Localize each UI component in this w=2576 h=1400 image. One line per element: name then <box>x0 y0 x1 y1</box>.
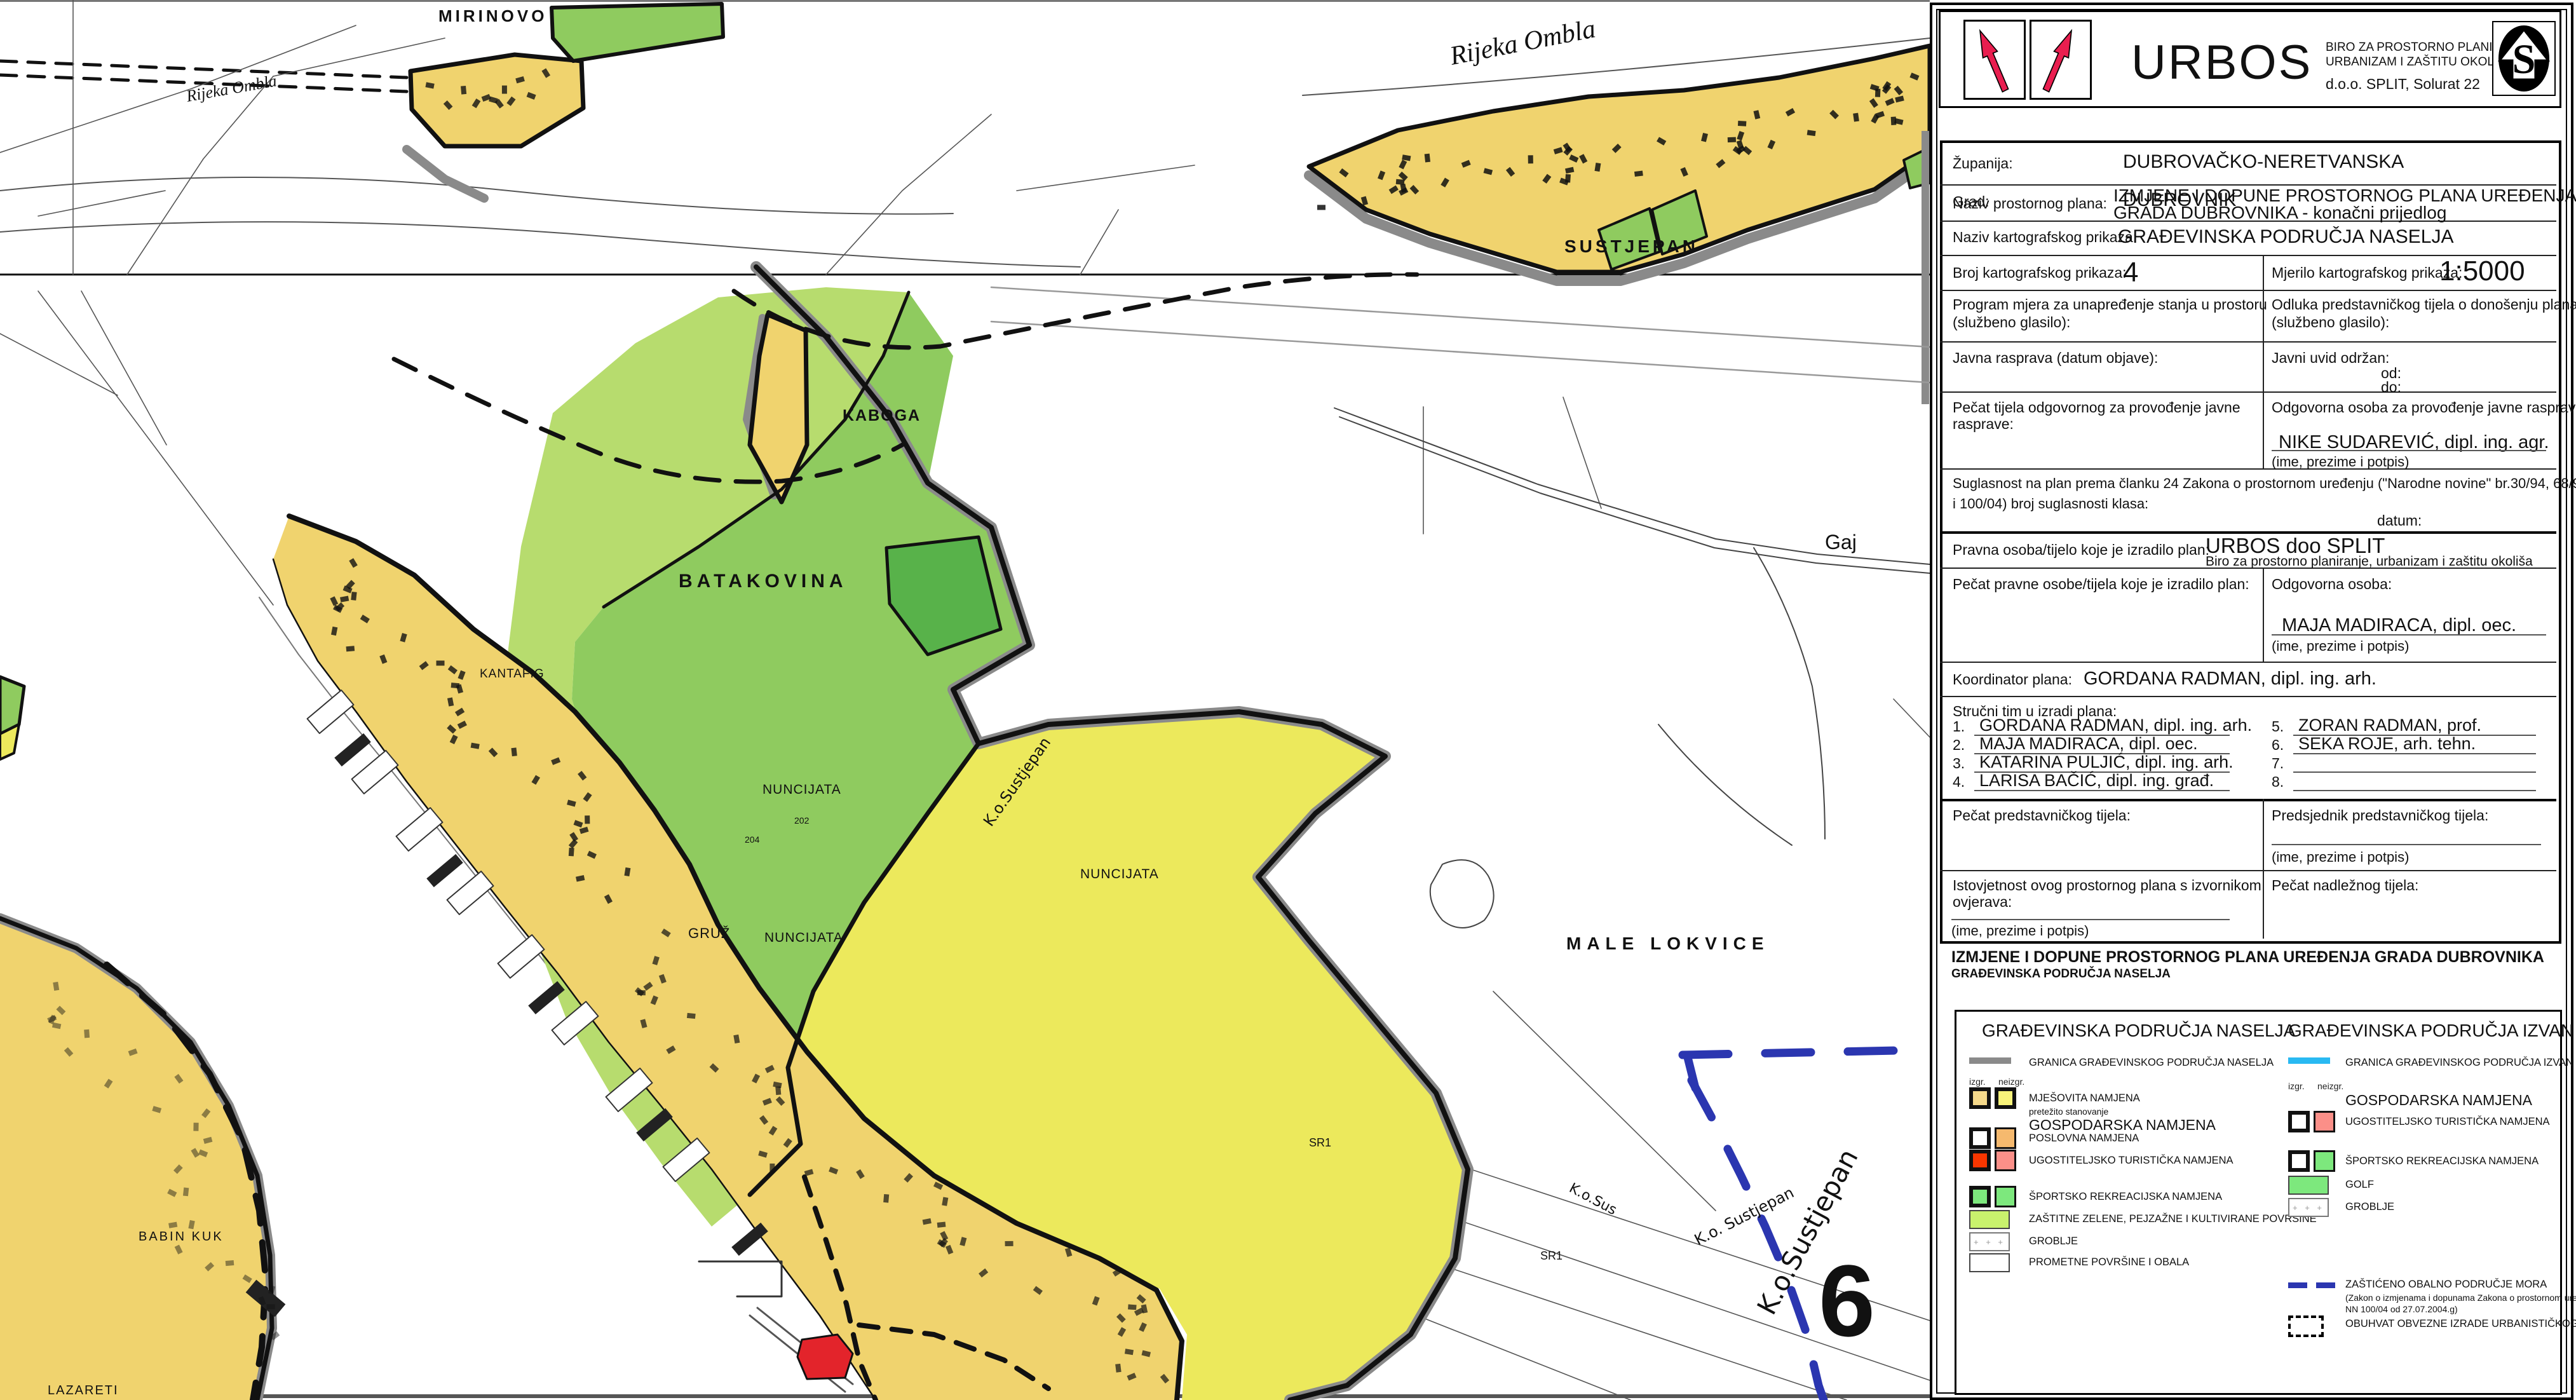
legend-neizgr-label: neizgr. <box>1998 1077 2024 1087</box>
pravna-value-2: Biro za prostorno planiranje, urbanizam … <box>2206 554 2533 569</box>
odluka-label-1: Odluka predstavničkog tijela o donošenju… <box>2272 296 2576 313</box>
legend-swatch-izgradeno <box>2288 1150 2310 1172</box>
map-label: NUNCIJATA <box>764 930 843 945</box>
team-member-name: MAJA MADIRACA, dipl. oec. <box>1979 734 2198 754</box>
legend-izgr-label: izgr. <box>2288 1081 2305 1091</box>
title-block-panel: URBOS BIRO ZA PROSTORNO PLANIRANJE, URBA… <box>1930 3 2573 1400</box>
istovjetnost-label-1: Istovjetnost ovog prostornog plana s izv… <box>1953 877 2261 894</box>
map-label: BATAKOVINA <box>679 571 848 592</box>
map-label: BABIN KUK <box>139 1230 224 1244</box>
legend-item-label: ZAŠTIĆENO OBALNO PODRUČJE MORA <box>2345 1279 2547 1291</box>
broj-prikaza-value: 4 <box>2123 257 2138 289</box>
team-member-number: 6. <box>2272 737 2284 754</box>
map-label: SR1 <box>1540 1249 1563 1262</box>
legend-swatch-izgradeno <box>1969 1087 1991 1109</box>
map-label: 202 <box>794 815 810 826</box>
pecat-pravne-label: Pečat pravne osobe/tijela koje je izradi… <box>1953 576 2249 593</box>
team-member-name: SEKA ROJE, arh. tehn. <box>2298 734 2476 754</box>
legend-swatch <box>1969 1210 2010 1229</box>
legend-swatch-neizgradeno <box>2314 1150 2335 1172</box>
map-label: KABOGA <box>843 407 921 425</box>
legend-swatch-zop-dash <box>2316 1282 2335 1288</box>
team-member-number: 4. <box>1953 773 1965 791</box>
legend-item-sublabel: pretežito stanovanje <box>2029 1106 2108 1117</box>
map-label: Gaj <box>1825 531 1857 554</box>
datum-label: datum: <box>2377 512 2422 529</box>
legend-swatch-izgradeno <box>1969 1186 1991 1207</box>
legend-swatch-neizgradeno <box>1995 1087 2016 1109</box>
legend-swatch-izgradeno <box>2288 1111 2310 1132</box>
do-label: do: <box>2381 379 2401 396</box>
split-s-logo: S <box>2492 21 2556 99</box>
map-frame-top <box>0 0 1930 2</box>
svg-text:S: S <box>2512 36 2536 83</box>
mjerilo-value: 1:5000 <box>2439 255 2525 287</box>
legend-item-label: PROMETNE POVRŠINE I OBALA <box>2029 1256 2189 1268</box>
pecat-tijela-label-2: rasprave: <box>1953 416 2014 433</box>
legend-item-label: UGOSTITELJSKO TURISTIČKA NAMJENA <box>2345 1116 2550 1128</box>
pecat-tijela-label-1: Pečat tijela odgovornog za provođenje ja… <box>1953 399 2240 416</box>
zupanija-label: Županija: <box>1953 155 2013 172</box>
map-label: KANTAFIG <box>480 667 545 681</box>
map-label: MALE LOKVICE <box>1566 934 1770 953</box>
legend-item-label: ŠPORTSKO REKREACIJSKA NAMJENA <box>2029 1191 2222 1203</box>
logo-arrow-left-box <box>1963 20 2026 100</box>
legend-item-label: GRANICA GRAĐEVINSKOG PODRUČJA IZVAN NASE… <box>2345 1057 2576 1069</box>
plan-subtitle-2: GRAĐEVINSKA PODRUČJA NASELJA <box>1951 967 2171 981</box>
legend-swatch-groblje: + + + <box>1969 1232 2010 1251</box>
ime-potpis-note-2: (ime, prezime i potpis) <box>2272 638 2409 655</box>
plan-sheet: MIRINOVORijeka OmblaRijeka OmblaSUSTJEPA… <box>0 0 2576 1400</box>
team-member-number: 8. <box>2272 773 2284 791</box>
map-label: GRUŽ <box>688 925 730 941</box>
company-name: URBOS <box>2131 35 2312 90</box>
pecat-predstavnickog-label: Pečat predstavničkog tijela: <box>1953 807 2131 824</box>
legend-item-label: POSLOVNA NAMJENA <box>2029 1132 2139 1145</box>
legend-right-title: GRAĐEVINSKA PODRUČJA IZVAN NASELJA <box>2288 1021 2576 1041</box>
map-label: NUNCIJATA <box>1080 867 1159 881</box>
legend-item-label: ZAŠTITNE ZELENE, PEJZAŽNE I KULTIVIRANE … <box>2029 1213 2317 1225</box>
legend-item-label: MJEŠOVITA NAMJENA <box>2029 1092 2140 1104</box>
legend-section-heading: GOSPODARSKA NAMJENA <box>2029 1117 2216 1134</box>
legend-swatch <box>1969 1253 2010 1272</box>
ime-potpis-note-3: (ime, prezime i potpis) <box>2272 849 2409 866</box>
naziv-plana-line2: GRADA DUBROVNIKA - konačni prijedlog <box>2113 203 2446 223</box>
legend-left-title: GRAĐEVINSKA PODRUČJA NASELJA <box>1982 1021 2295 1041</box>
legend-swatch-groblje: + + + <box>2288 1198 2329 1217</box>
legend-item-label: GOLF <box>2345 1179 2374 1191</box>
naziv-plana-label: Naziv prostornog plana: <box>1953 195 2107 212</box>
istovjetnost-label-2: ovjerava: <box>1953 894 2012 911</box>
pravna-label: Pravna osoba/tijelo koje je izradilo pla… <box>1953 541 2209 559</box>
map-label: 6 <box>1819 1244 1875 1357</box>
team-member-number: 7. <box>2272 755 2284 772</box>
arrow-up-right-icon <box>2031 22 2086 94</box>
sheet-edge-bar <box>1922 131 1929 404</box>
team-member-number: 2. <box>1953 737 1965 754</box>
odluka-label-2: (službeno glasilo): <box>2272 314 2389 331</box>
team-member-name: LARISA BAČIĆ, dipl. ing. građ. <box>1979 771 2214 791</box>
logo-box: URBOS BIRO ZA PROSTORNO PLANIRANJE, URBA… <box>1939 10 2561 108</box>
broj-prikaza-label: Broj kartografskog prikaza: <box>1953 264 2127 282</box>
odgovorna-rasprava-label: Odgovorna osoba za provođenje javne rasp… <box>2272 399 2576 416</box>
team-member-name: ZORAN RADMAN, prof. <box>2298 716 2481 735</box>
legend-item-label: UGOSTITELJSKO TURISTIČKA NAMJENA <box>2029 1155 2234 1167</box>
predsjednik-label: Predsjednik predstavničkog tijela: <box>2272 807 2488 824</box>
javni-uvid-label: Javni uvid održan: <box>2272 350 2389 367</box>
legend-swatch-neizgradeno <box>1995 1127 2016 1149</box>
legend-swatch-neizgradeno <box>1995 1186 2016 1207</box>
map-label: SUSTJEPAN <box>1564 236 1698 256</box>
legend-item-label: OBUHVAT OBVEZNE IZRADE URBANISTIČKOG PLA… <box>2345 1318 2576 1330</box>
ime-potpis-note-1: (ime, prezime i potpis) <box>2272 454 2409 470</box>
arrow-up-left-icon <box>1965 22 2020 94</box>
legend-swatch-izgradeno <box>1969 1127 1991 1149</box>
naziv-prikaza-label: Naziv kartografskog prikaza: <box>1953 229 2137 246</box>
map-label: MIRINOVO <box>438 6 547 25</box>
legend-swatch-neizgradeno <box>2314 1111 2335 1132</box>
team-member-number: 3. <box>1953 755 1965 772</box>
naziv-prikaza-value: GRAĐEVINSKA PODRUČJA NASELJA <box>2118 226 2454 248</box>
legend-neizgr-label: neizgr. <box>2317 1081 2343 1091</box>
map-label: NUNCIJATA <box>763 782 841 797</box>
team-member-number: 1. <box>1953 718 1965 735</box>
team-member-name: KATARINA PULJIĆ, dipl. ing. arh. <box>1979 752 2234 772</box>
pecat-nadleznog-label: Pečat nadležnog tijela: <box>2272 877 2418 894</box>
map-label: LAZARETI <box>48 1383 119 1397</box>
byline-3: d.o.o. SPLIT, Solurat 22 <box>2326 76 2480 93</box>
map-label: SR1 <box>1309 1136 1331 1149</box>
odgovorna-value: MAJA MADIRACA, dipl. oec. <box>2282 615 2516 636</box>
legend-item-sublabel: (Zakon o izmjenama i dopunama Zakona o p… <box>2345 1293 2576 1303</box>
javna-rasprava-label: Javna rasprava (datum objave): <box>1953 350 2158 367</box>
pond <box>1430 860 1494 928</box>
map-label: 204 <box>745 834 760 845</box>
mjerilo-label: Mjerilo kartografskog prikaza: <box>2272 264 2462 282</box>
legend-item-sublabel: NN 100/04 od 27.07.2004.g) <box>2345 1304 2458 1314</box>
legend-swatch-izgradeno <box>1969 1150 1991 1171</box>
team-member-number: 5. <box>2272 718 2284 735</box>
legend-item-label: GROBLJE <box>2029 1235 2078 1247</box>
legend-swatch <box>2288 1176 2329 1195</box>
odgovorna-label: Odgovorna osoba: <box>2272 576 2392 593</box>
legend-swatch-neizgradeno <box>1995 1150 2016 1171</box>
ime-potpis-note-4: (ime, prezime i potpis) <box>1951 923 2089 939</box>
suglasnost-line1: Suglasnost na plan prema članku 24 Zakon… <box>1953 475 2576 492</box>
suglasnost-line2: i 100/04) broj suglasnosti klasa: <box>1953 496 2148 512</box>
legend-swatch-obuhvat <box>2288 1315 2324 1337</box>
legend-item-label: GROBLJE <box>2345 1201 2394 1213</box>
program-label-2: (službeno glasilo): <box>1953 314 2070 331</box>
legend-section-heading: GOSPODARSKA NAMJENA <box>2345 1092 2532 1109</box>
legend-swatch-granica-izvan <box>2288 1057 2330 1064</box>
zupanija-value: DUBROVAČKO-NERETVANSKA <box>2123 151 2404 173</box>
legend-item-label: GRANICA GRAĐEVINSKOG PODRUČJA NASELJA <box>2029 1057 2274 1069</box>
legend-swatch-granica-naselja <box>1969 1057 2011 1064</box>
legend-izgr-label: izgr. <box>1969 1077 1986 1087</box>
program-label-1: Program mjera za unapređenje stanja u pr… <box>1953 296 2267 313</box>
koordinator-label: Koordinator plana: <box>1953 671 2072 688</box>
logo-arrow-right-box <box>2030 20 2092 100</box>
plan-subtitle: IZMJENE I DOPUNE PROSTORNOG PLANA UREĐEN… <box>1951 948 2544 967</box>
legend-item-label: ŠPORTSKO REKREACIJSKA NAMJENA <box>2345 1155 2539 1167</box>
team-member-name: GORDANA RADMAN, dipl. ing. arh. <box>1979 716 2252 735</box>
koordinator-value: GORDANA RADMAN, dipl. ing. arh. <box>2084 669 2376 690</box>
legend-swatch-zop-dash <box>2288 1282 2307 1288</box>
